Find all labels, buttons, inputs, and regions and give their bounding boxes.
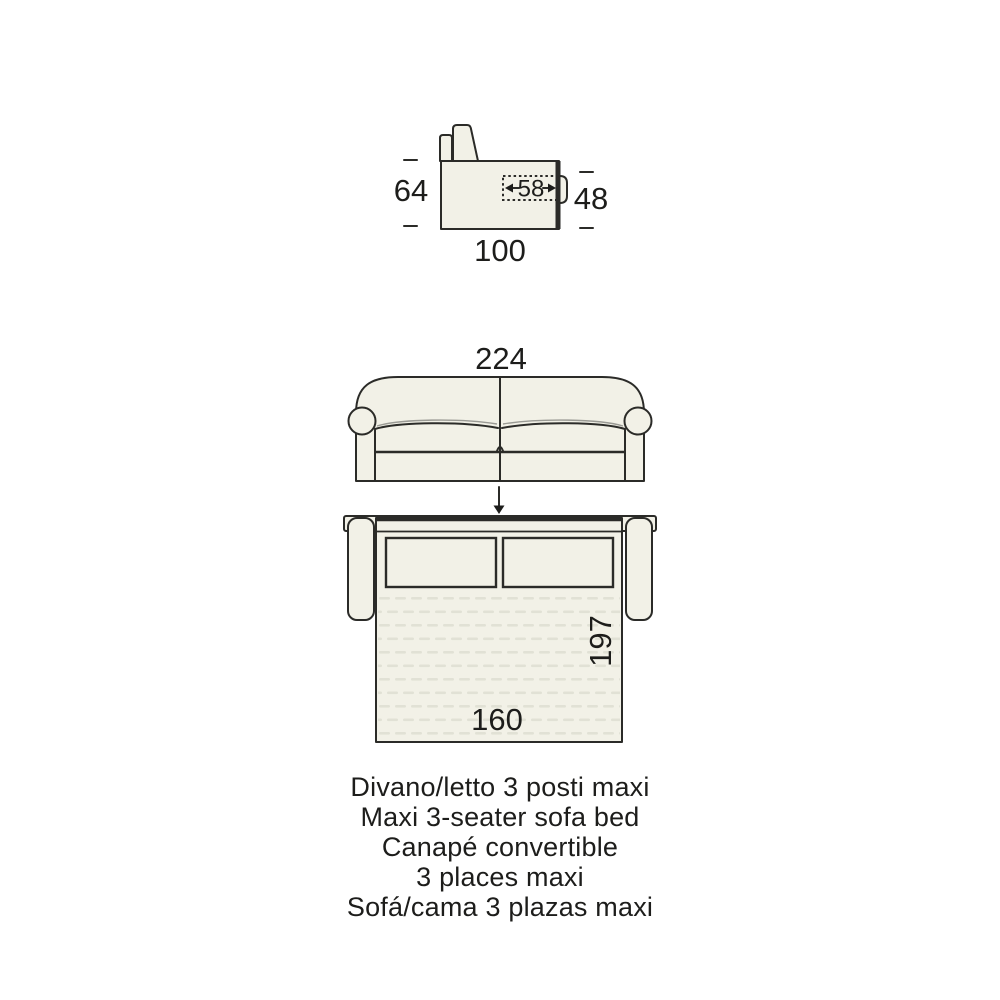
dim-total-depth-label: 100 (474, 233, 526, 268)
dim-bed-length-label: 197 (583, 615, 618, 667)
caption-french-line1: Canapé convertible (0, 832, 1000, 862)
dim-seat-height-label: 48 (574, 181, 608, 216)
dim-folded-bed-depth-label: 58 (518, 176, 545, 203)
caption-italian: Divano/letto 3 posti maxi (0, 772, 1000, 802)
caption-english: Maxi 3-seater sofa bed (0, 802, 1000, 832)
front-view-diagram: 224 (349, 341, 652, 481)
open-view-left-armrest (348, 518, 374, 620)
front-view-left-arm-roll (349, 408, 376, 435)
open-bed-view-diagram: 197 160 (344, 516, 656, 742)
open-view-right-back-cushion (503, 538, 613, 587)
caption-spanish: Sofá/cama 3 plazas maxi (0, 892, 1000, 922)
dim-total-height-label: 64 (394, 173, 428, 208)
front-view-right-arm-roll (625, 408, 652, 435)
side-view-back-frame (440, 135, 452, 161)
caption-block: Divano/letto 3 posti maxi Maxi 3-seater … (0, 772, 1000, 922)
dim-total-width-label: 224 (475, 341, 527, 376)
open-view-right-armrest (626, 518, 652, 620)
caption-french-line2: 3 places maxi (0, 862, 1000, 892)
fold-out-arrow-icon (494, 487, 505, 514)
dim-bed-width-label: 160 (471, 702, 523, 737)
open-view-left-back-cushion (386, 538, 496, 587)
side-view-back-cushion (453, 125, 478, 161)
side-view-diagram: 58 64 48 100 (394, 125, 608, 268)
arrow-down-head (494, 506, 505, 515)
